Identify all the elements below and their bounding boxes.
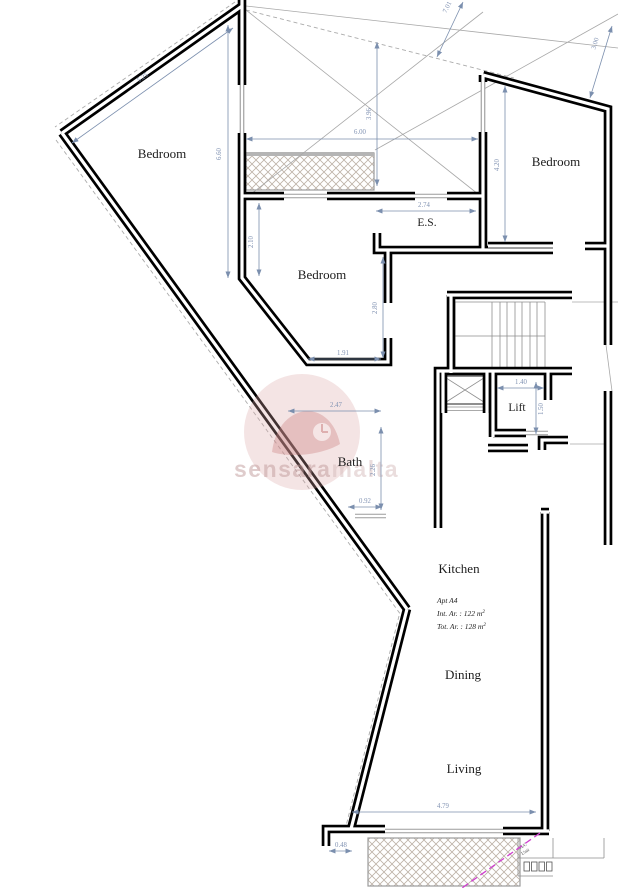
dim-living-width: 4.79 <box>437 803 449 810</box>
dim-terrace-width: 6.00 <box>354 129 366 136</box>
room-label-dining: Dining <box>445 667 482 682</box>
dim-bath-door: 0.92 <box>359 498 371 505</box>
apartment-int-area-sup: 2 <box>482 609 485 615</box>
floor-plan-drawing: sensaramalta 5.25 6.60 2.10 6.00 3.96 7.… <box>0 0 618 888</box>
apartment-int-area: Int. Ar. : 122 m2 <box>436 609 485 618</box>
dim-es-width: 2.74 <box>418 202 430 209</box>
room-label-living: Living <box>447 761 482 776</box>
ac-unit-icon <box>547 862 553 871</box>
watermark-text-primary: sensara <box>234 456 331 482</box>
dim-bedroom2-recess-width: 1.91 <box>337 350 349 357</box>
dim-bath-height: 2.26 <box>370 463 377 475</box>
apartment-tot-area-sup: 2 <box>483 622 486 628</box>
apartment-tot-area-text: Tot. Ar. : 128 m <box>437 622 484 631</box>
room-labels: Bedroom Bedroom Bedroom E.S. Lift Bath K… <box>138 146 580 776</box>
ac-unit-icon <box>539 862 545 871</box>
planter-hatch <box>246 153 374 190</box>
apartment-name: Apt A4 <box>436 596 458 605</box>
room-label-kitchen: Kitchen <box>438 561 480 576</box>
room-label-bath: Bath <box>338 454 363 469</box>
dim-bath-width: 2.47 <box>330 402 342 409</box>
dim-roof-offset: 3.00 <box>590 36 600 50</box>
dim-bedroom2-recess-height: 2.80 <box>372 301 379 313</box>
dim-step-width: 0.48 <box>335 842 347 849</box>
apartment-int-area-text: Int. Ar. : 122 m <box>436 609 483 618</box>
dim-bedroom2-inner-height: 2.10 <box>248 235 255 247</box>
staircase <box>455 302 545 368</box>
ac-unit-icon <box>532 862 538 871</box>
ac-unit-icon <box>524 862 530 871</box>
dim-left-height: 6.60 <box>216 147 223 159</box>
room-label-ensuite: E.S. <box>417 217 436 229</box>
stair-treads <box>455 302 545 368</box>
room-label-lift: Lift <box>508 402 526 414</box>
dimension-labels: 5.25 6.60 2.10 6.00 3.96 7.01 3.00 4.20 … <box>136 0 601 849</box>
dim-terrace-height: 3.96 <box>366 107 373 119</box>
dim-top-cut: 7.01 <box>442 0 454 14</box>
room-label-bedroom-middle: Bedroom <box>298 267 346 282</box>
floor-plan-page: sensaramalta 5.25 6.60 2.10 6.00 3.96 7.… <box>0 0 618 888</box>
dim-lift-width: 1.40 <box>515 379 527 386</box>
room-label-bedroom-left: Bedroom <box>138 146 186 161</box>
dim-right-bedroom-height: 4.20 <box>494 158 501 170</box>
apartment-info: Apt A4 Int. Ar. : 122 m2 Tot. Ar. : 128 … <box>436 596 486 631</box>
balcony-hatch <box>368 838 520 886</box>
ac-area-partitions <box>518 838 604 876</box>
apartment-tot-area: Tot. Ar. : 128 m2 <box>437 622 486 631</box>
room-label-bedroom-right: Bedroom <box>532 154 580 169</box>
dim-lift-depth: 1.50 <box>538 402 545 414</box>
service-shaft <box>443 376 487 411</box>
